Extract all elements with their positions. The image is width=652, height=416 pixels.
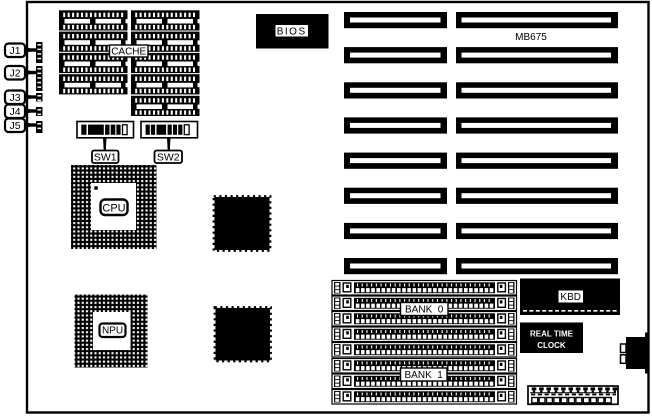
svg-text:SW2: SW2: [157, 152, 180, 164]
svg-text:CLOCK: CLOCK: [537, 341, 566, 350]
svg-text:J4: J4: [9, 106, 20, 118]
svg-text:BANK 1: BANK 1: [405, 370, 444, 381]
svg-text:CPU: CPU: [102, 202, 125, 214]
svg-text:BIOS: BIOS: [277, 26, 307, 37]
svg-text:BANK 0: BANK 0: [405, 305, 444, 316]
svg-text:KBD: KBD: [560, 292, 581, 303]
svg-text:REAL TIME: REAL TIME: [530, 329, 574, 338]
svg-text:NPU: NPU: [102, 326, 123, 337]
svg-text:J5: J5: [9, 120, 20, 132]
svg-text:J3: J3: [9, 92, 20, 104]
svg-text:MB675: MB675: [515, 32, 547, 43]
svg-text:J2: J2: [9, 67, 20, 79]
svg-text:J1: J1: [9, 45, 20, 57]
svg-text:CACHE: CACHE: [111, 47, 146, 58]
svg-text:SW1: SW1: [94, 152, 117, 164]
